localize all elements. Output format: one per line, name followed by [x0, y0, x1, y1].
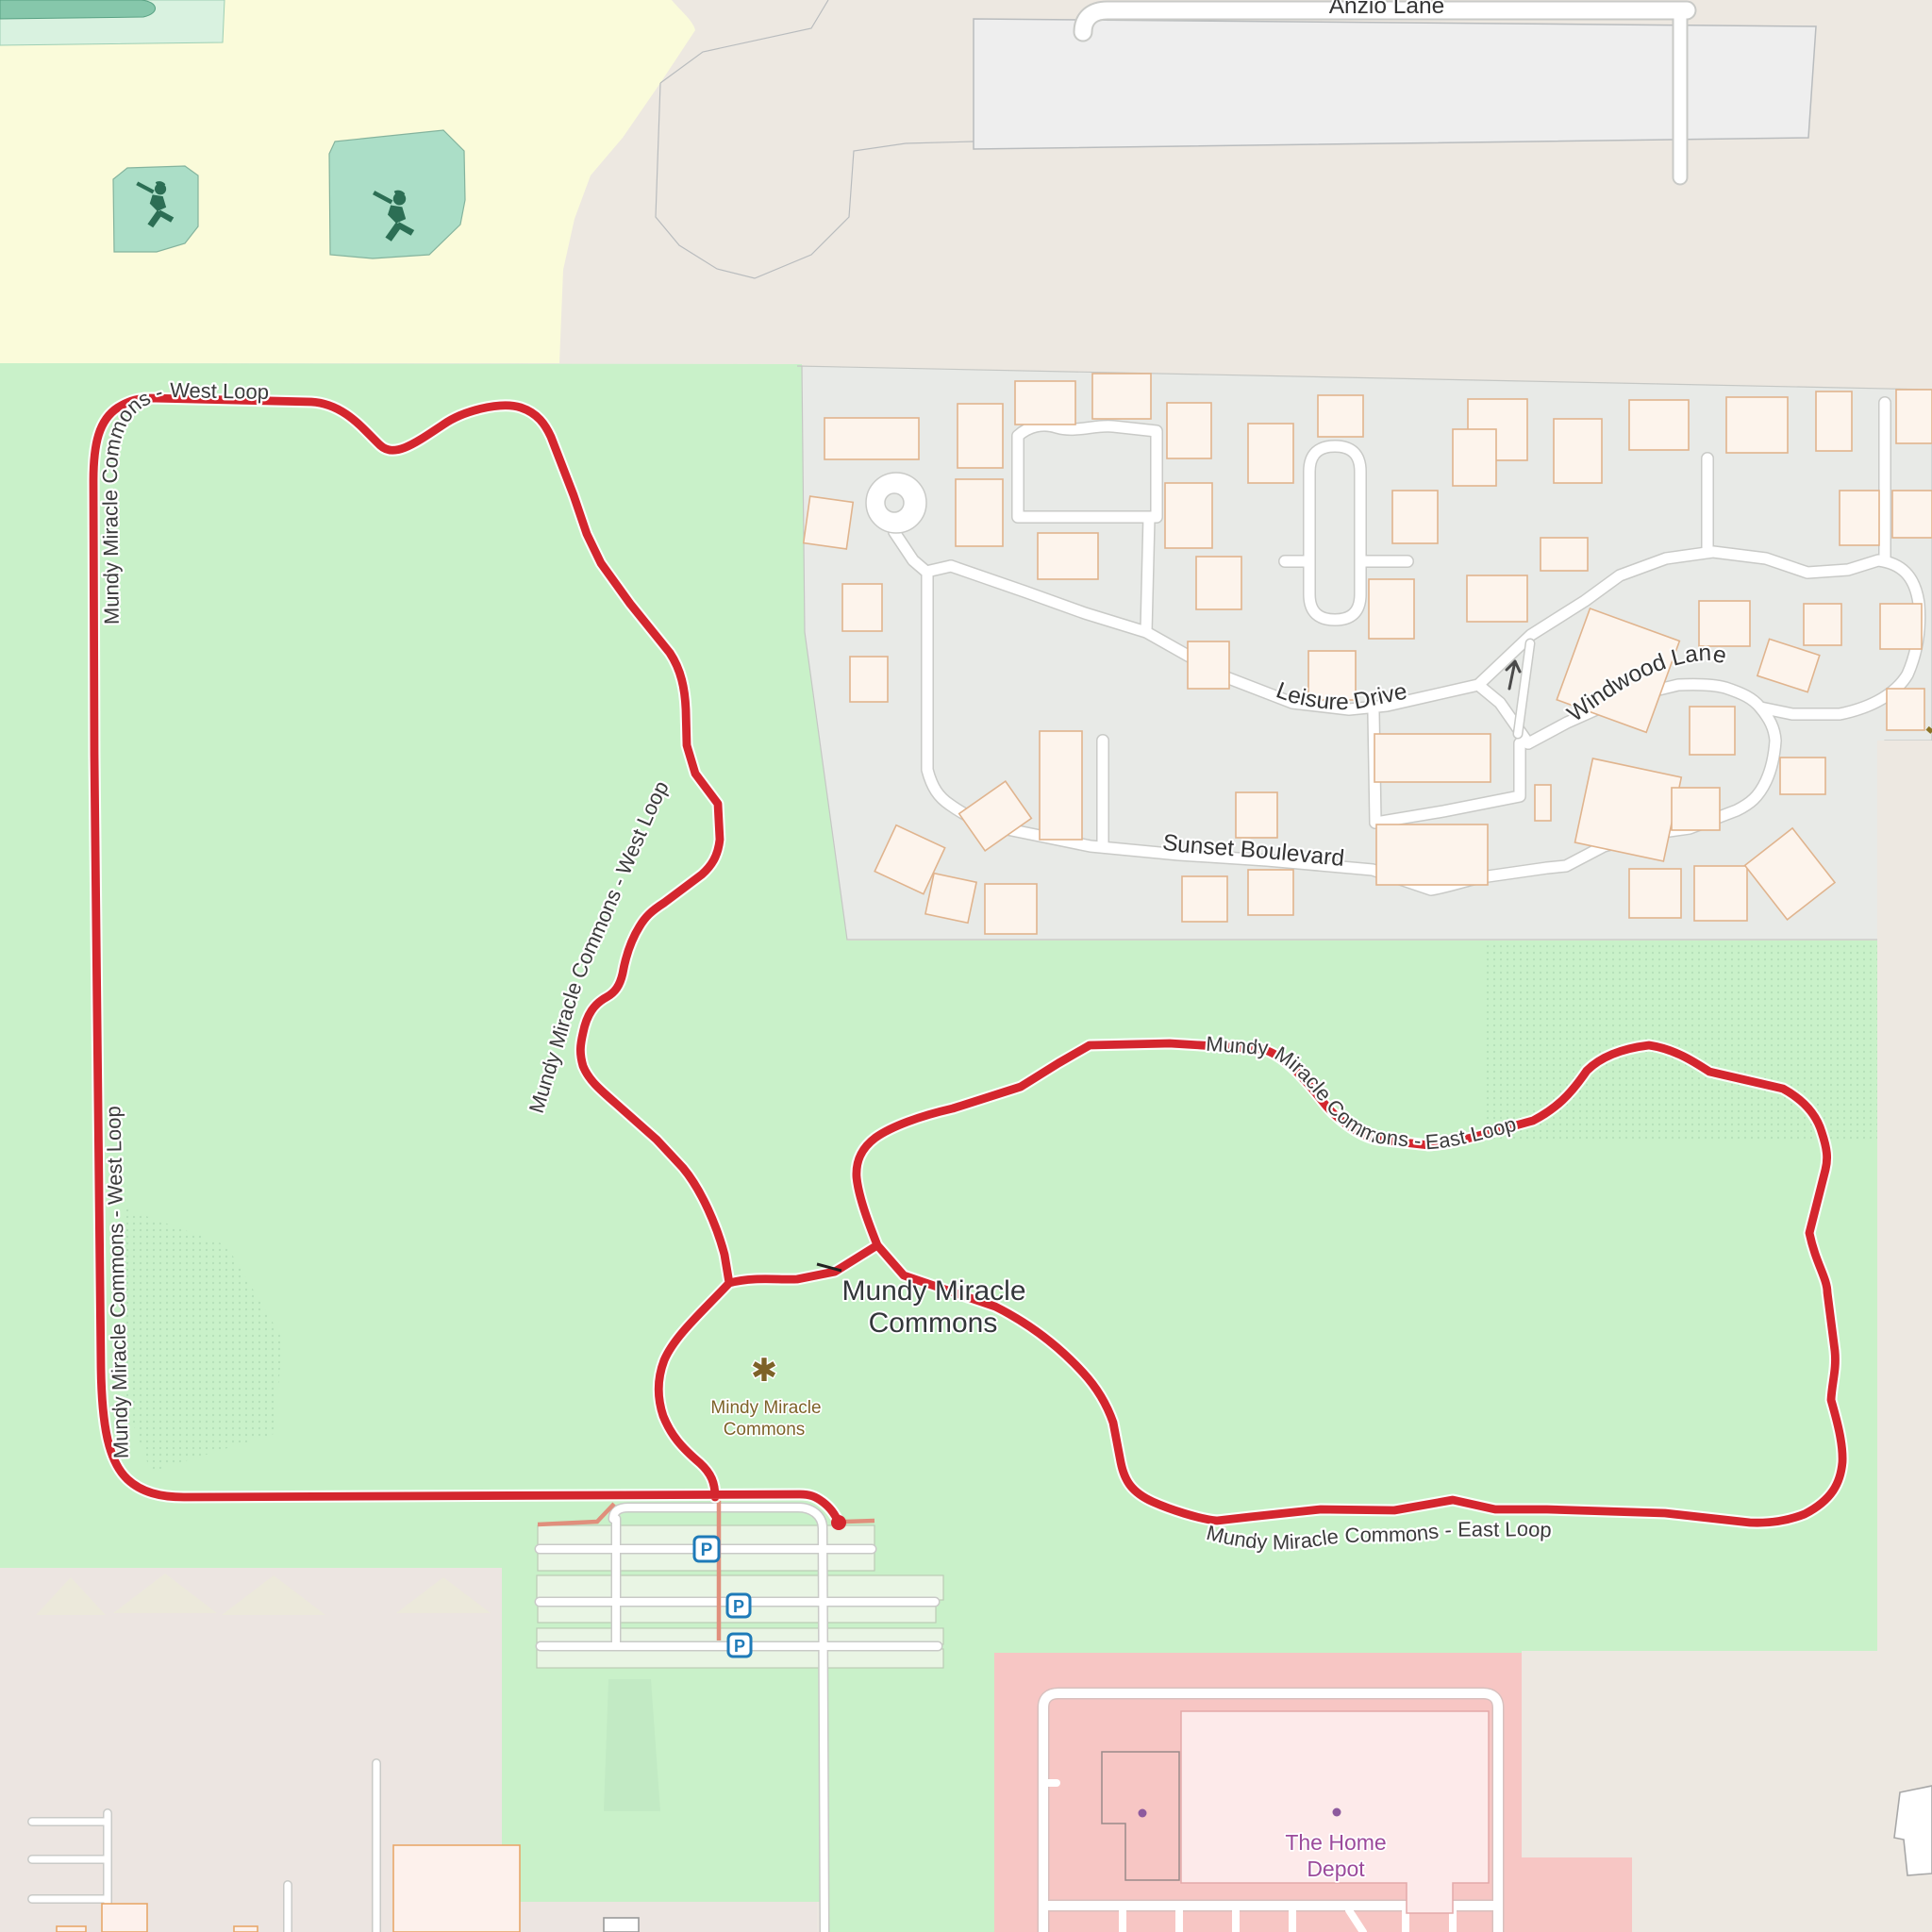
svg-text:P: P — [701, 1541, 713, 1560]
svg-text:✱: ✱ — [751, 1353, 778, 1389]
svg-text:Anzio Lane: Anzio Lane — [1329, 0, 1445, 19]
svg-text:The Home: The Home — [1285, 1830, 1386, 1855]
svg-text:Commons: Commons — [724, 1420, 806, 1440]
svg-text:Depot: Depot — [1307, 1857, 1365, 1881]
svg-text:Commons: Commons — [869, 1307, 998, 1339]
svg-text:Mindy Miracle: Mindy Miracle — [710, 1398, 821, 1418]
svg-text:Mundy Miracle: Mundy Miracle — [841, 1275, 1025, 1307]
svg-text:P: P — [734, 1637, 745, 1656]
svg-text:P: P — [733, 1597, 744, 1616]
